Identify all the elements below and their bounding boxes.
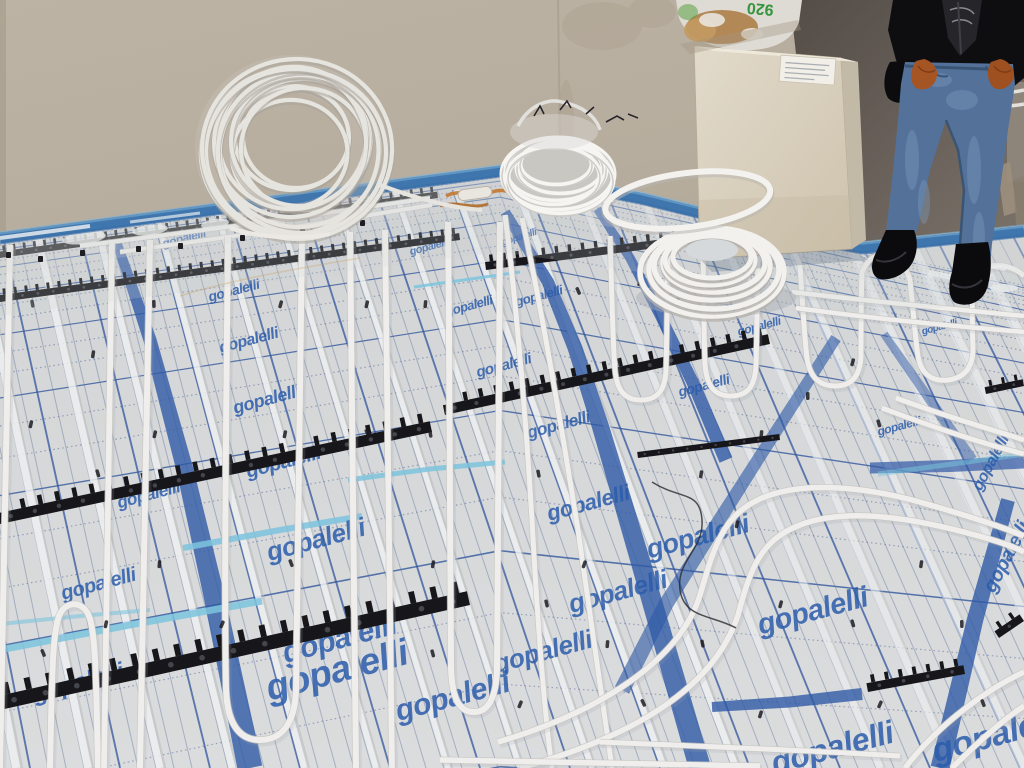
svg-text:920: 920 — [746, 0, 774, 18]
